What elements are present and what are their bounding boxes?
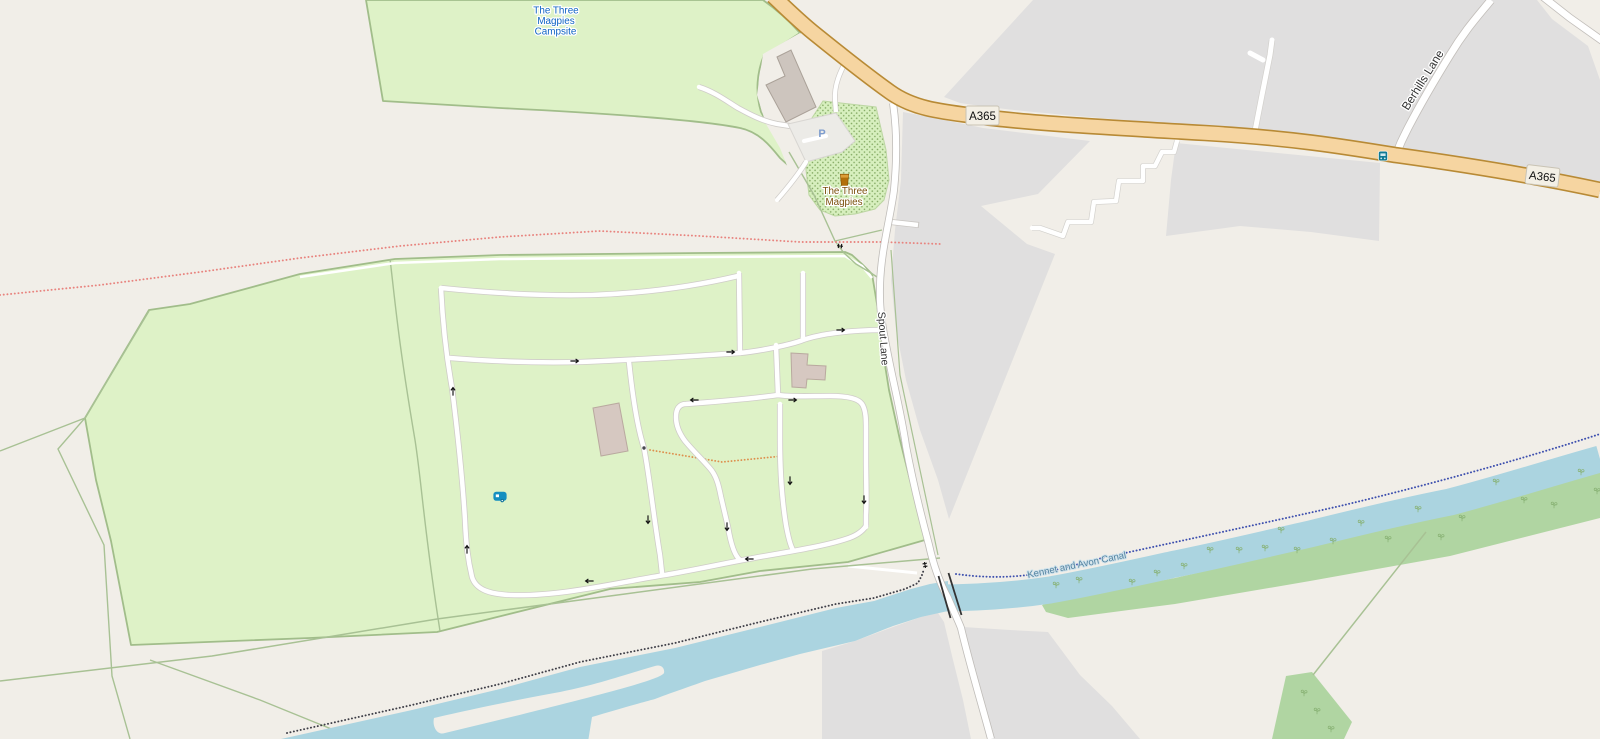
svg-text:The Three: The Three bbox=[822, 186, 868, 197]
svg-text:Magpies: Magpies bbox=[537, 16, 574, 27]
svg-text:A365: A365 bbox=[969, 111, 996, 123]
svg-text:The Three: The Three bbox=[533, 6, 579, 17]
svg-text:Campsite: Campsite bbox=[535, 27, 577, 38]
svg-text:Magpies: Magpies bbox=[825, 197, 862, 208]
svg-text:P: P bbox=[818, 128, 825, 140]
